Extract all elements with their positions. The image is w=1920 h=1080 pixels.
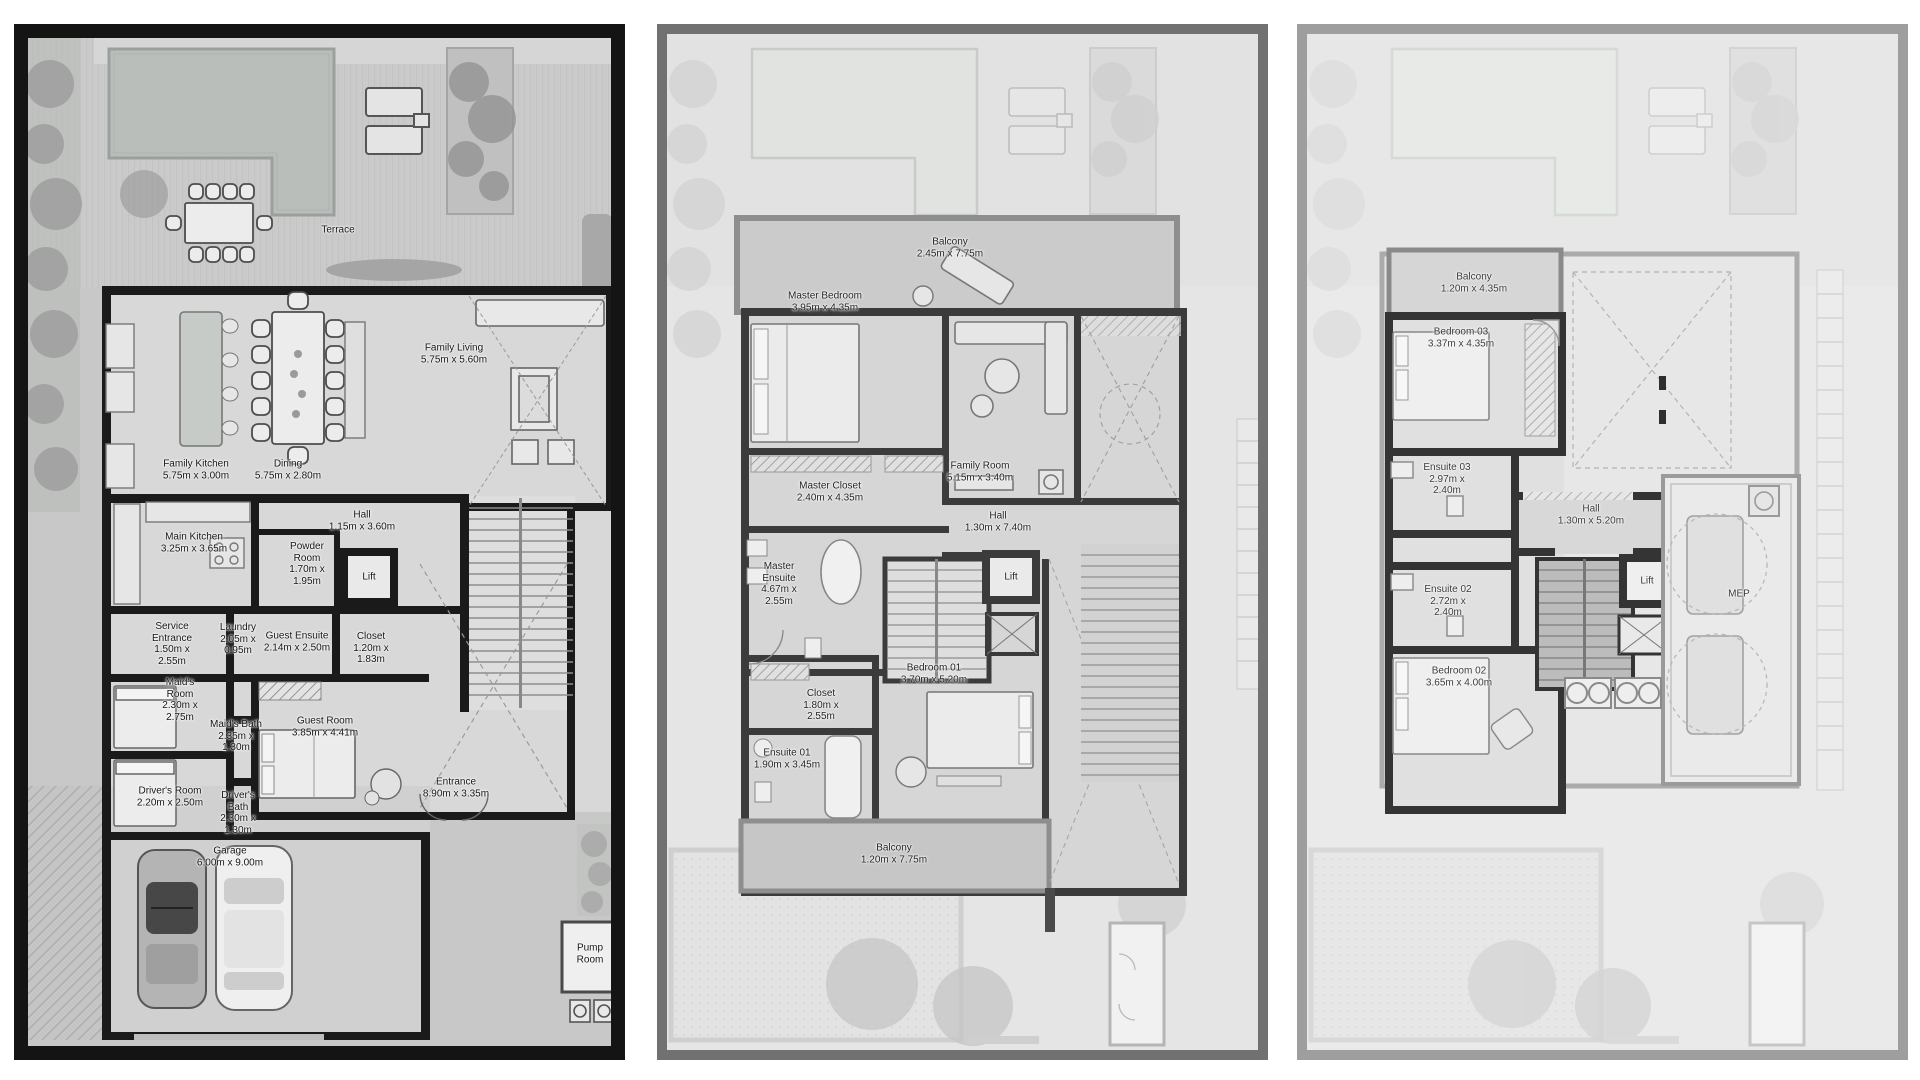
second-floor-plan: Balcony1.20m x 4.35m Bedroom 033.37m x 4…: [1297, 24, 1908, 1060]
gate: [1609, 1036, 1679, 1044]
first-floor-plan: Balcony2.45m x 7.75m Master Bedroom3.95m…: [657, 24, 1268, 1060]
stairs-center: [885, 559, 989, 681]
sideboard: [345, 322, 365, 438]
ground-floor-drawing: [14, 24, 625, 1060]
gate: [969, 1036, 1039, 1044]
ground-floor-plan: Terrace Family Living5.75m x 5.60m Famil…: [14, 24, 625, 1060]
first-floor-drawing: [657, 24, 1268, 1060]
lift-shaft: [982, 550, 1040, 604]
lawn: [1311, 850, 1601, 1040]
driveway: [28, 786, 102, 1040]
lift-shaft: [340, 548, 398, 606]
floor-plans-sheet: Terrace Family Living5.75m x 5.60m Famil…: [0, 0, 1920, 1080]
hedge: [326, 259, 462, 281]
pump-room-box: [562, 922, 618, 992]
trellis: [1237, 419, 1259, 689]
second-floor-drawing: [1297, 24, 1908, 1060]
entry-porch: [1110, 923, 1164, 1045]
master-bed: [751, 324, 859, 442]
garage-door: [134, 1034, 324, 1040]
bedroom03-furniture: [1393, 320, 1559, 436]
balcony: [1389, 250, 1561, 316]
trellis: [1817, 270, 1843, 790]
car-2: [216, 846, 292, 1010]
entry-porch: [1750, 923, 1804, 1045]
car-1: [138, 850, 206, 1008]
low-wall-hatch: [1523, 492, 1633, 500]
mep-room: [1663, 476, 1799, 784]
stairs-long: [1081, 544, 1179, 782]
balcony-bottom: [741, 821, 1049, 891]
